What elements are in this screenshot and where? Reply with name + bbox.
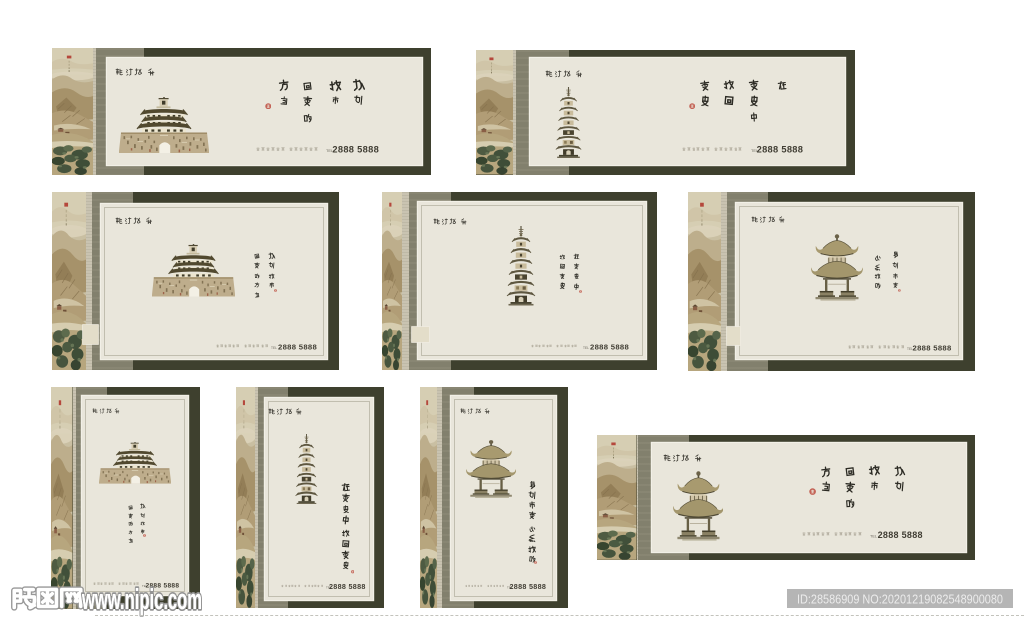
svg-text:2888 5888: 2888 5888 (329, 582, 366, 591)
svg-text:2888 5888: 2888 5888 (509, 582, 546, 591)
svg-text:TEL: TEL (870, 535, 877, 539)
svg-text:2888 5888: 2888 5888 (590, 343, 629, 352)
svg-text:2888 5888: 2888 5888 (332, 145, 379, 155)
svg-text:2888 5888: 2888 5888 (912, 343, 951, 352)
svg-text:2888 5888: 2888 5888 (756, 145, 803, 155)
svg-text:2888 5888: 2888 5888 (278, 343, 317, 352)
svg-text:TEL: TEL (583, 346, 589, 350)
svg-text:ID:28586909 NO:202012190825489: ID:28586909 NO:20201219082548900080 (797, 593, 1003, 607)
svg-text:www.nipic.com: www.nipic.com (81, 584, 202, 616)
svg-text:TEL: TEL (271, 346, 277, 350)
svg-text:2888 5888: 2888 5888 (877, 530, 922, 540)
